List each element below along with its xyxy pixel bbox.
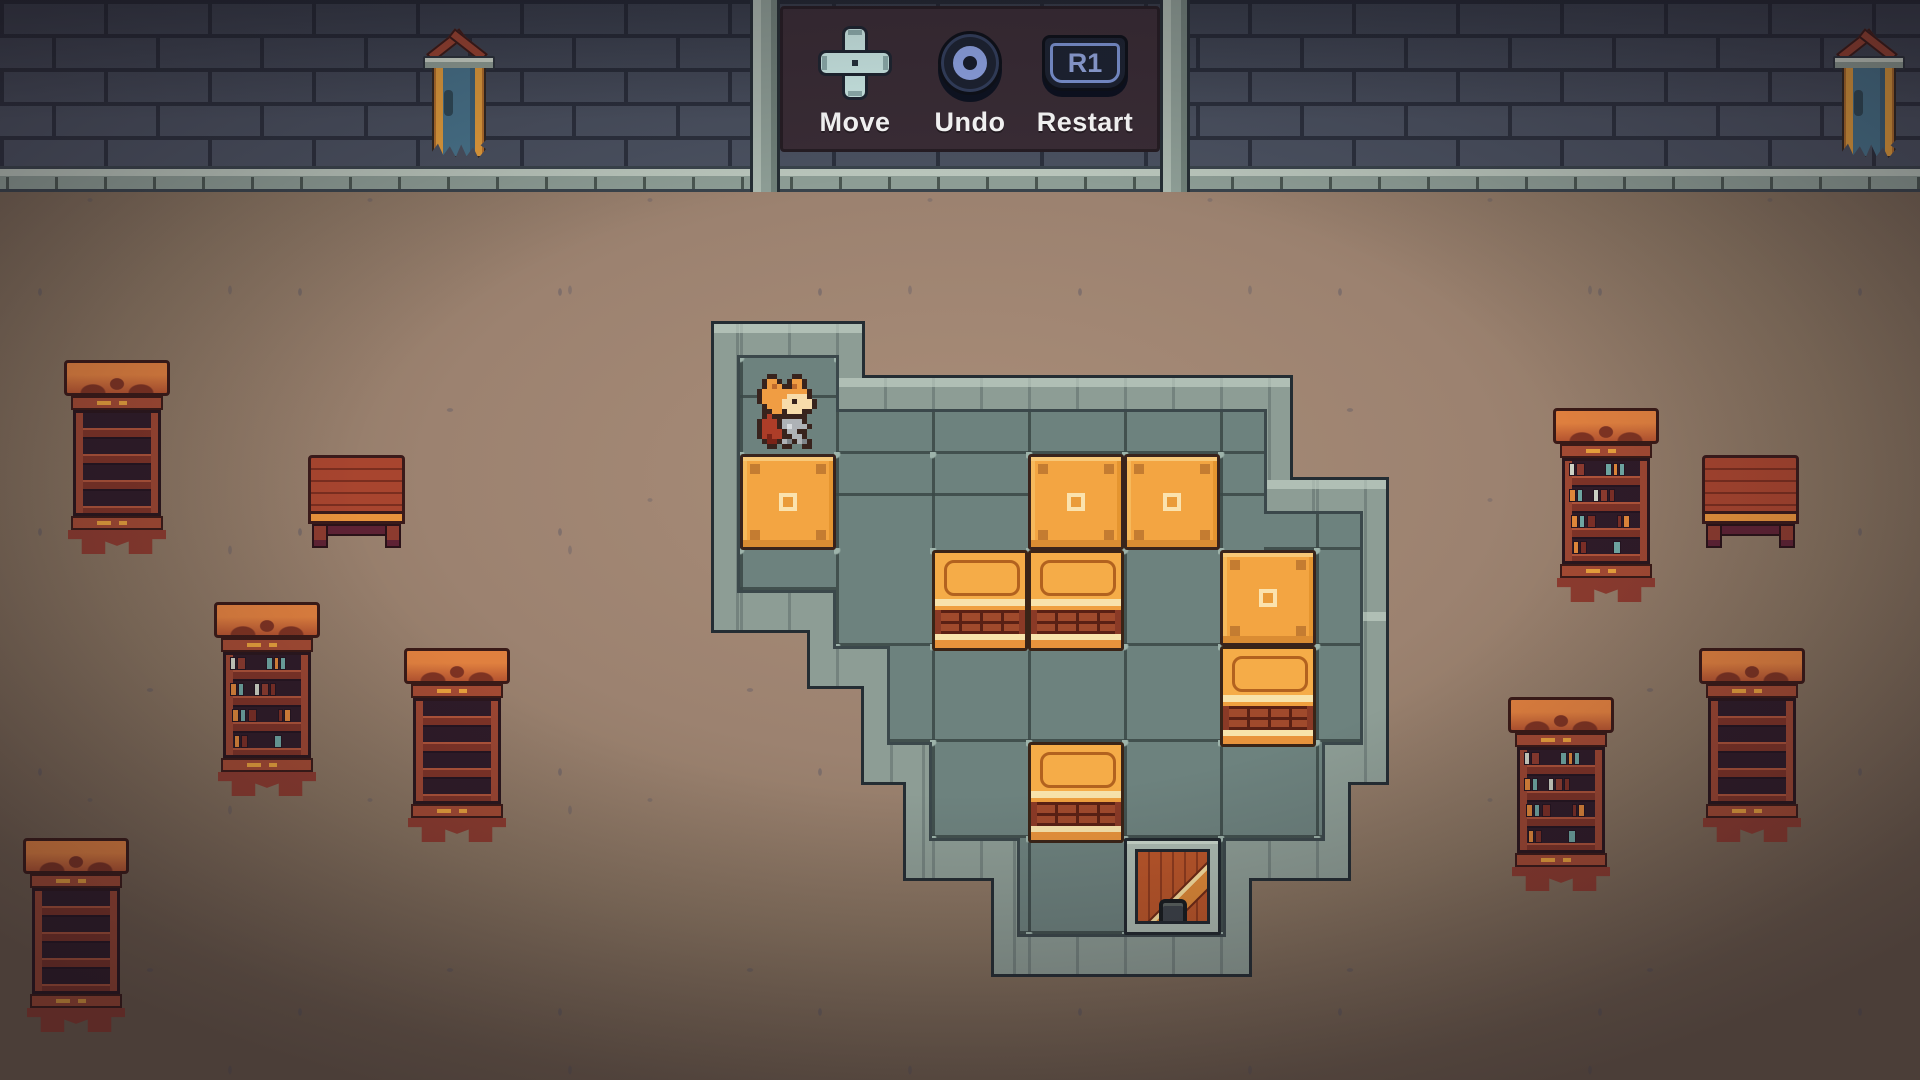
book-spine [232, 709, 239, 722]
table [308, 455, 405, 550]
cabinet-top-panel [1232, 656, 1308, 692]
book-spine [1572, 804, 1577, 817]
bookshelf-shelves [73, 410, 161, 516]
book-spine [241, 735, 248, 748]
bookshelf-shelves [1708, 698, 1796, 804]
book-spine [1619, 463, 1625, 476]
wall-baseboard [0, 166, 1920, 192]
bookshelf-crown [1553, 408, 1659, 444]
book-spine [1577, 489, 1583, 502]
bookshelf-books [1565, 461, 1647, 561]
book-spine [1580, 541, 1587, 554]
cabinet-top-panel [1040, 560, 1116, 596]
banner-rod [1833, 56, 1905, 70]
book-spine [1564, 778, 1570, 791]
cabinet-drawer-slats [1037, 610, 1115, 634]
book-spine [1526, 804, 1533, 817]
book-spine [1524, 778, 1531, 791]
book-spine [1569, 463, 1575, 476]
crate-center-mark [1163, 493, 1181, 511]
cabinet-block[interactable] [932, 550, 1028, 651]
banner-rod [423, 56, 495, 70]
r1-button-icon: R1 [1042, 35, 1128, 91]
cabinet-block[interactable] [1028, 550, 1124, 651]
puzzle-platform [740, 358, 1360, 934]
bookshelf-trim [411, 684, 503, 698]
cabinet-drawer-slats [1037, 802, 1115, 826]
bookshelf-trim [221, 638, 313, 652]
table-leg-left [1706, 524, 1722, 548]
bookshelf-base-trim [71, 516, 163, 530]
bookshelf-base-trim [1515, 853, 1607, 867]
book-spine [1534, 804, 1540, 817]
banner-emblem [1854, 90, 1863, 116]
bookshelf-books [226, 655, 308, 755]
bookshelf-trim [1515, 733, 1607, 747]
bookshelf-empty [408, 648, 506, 842]
bookshelf-skirt [68, 530, 166, 554]
bookshelf-skirt [27, 1008, 125, 1032]
book-spine [1542, 804, 1551, 817]
bookshelf-crown [214, 602, 320, 638]
bookshelf-crown [1508, 697, 1614, 733]
book-spine [1578, 804, 1585, 817]
trapdoor-ring-handle [1159, 899, 1187, 921]
bookshelf-base-trim [221, 758, 313, 772]
book-spine [230, 683, 237, 696]
book-spine [234, 735, 240, 748]
bookshelf-shelves [32, 888, 120, 994]
book-spine [240, 709, 246, 722]
bookshelf-with-books [1512, 697, 1610, 891]
book-spine [266, 657, 273, 670]
bookshelf-trim [1560, 444, 1652, 458]
bookshelf-with-books [1557, 408, 1655, 602]
book-spine [274, 657, 279, 670]
crate-block[interactable] [740, 454, 836, 550]
table-leg-left [312, 524, 328, 548]
undo-icon-area [938, 19, 1002, 107]
book-spine [1605, 463, 1612, 476]
bookshelf-trim [30, 874, 122, 888]
book-spine [1587, 515, 1596, 528]
banner-cloth [432, 68, 486, 158]
bookshelf-with-books [218, 602, 316, 796]
book-spine [270, 683, 276, 696]
cabinet-block[interactable] [1220, 646, 1316, 747]
banner-emblem [444, 90, 453, 116]
bookshelf-trim [71, 396, 163, 410]
bookshelf-trim [1706, 684, 1798, 698]
book-spine [1568, 752, 1573, 765]
book-spine [1600, 489, 1608, 502]
bookshelf-skirt [1557, 578, 1655, 602]
book-spine [1617, 515, 1622, 528]
table-leg-right [385, 524, 401, 548]
table-apron [1714, 524, 1787, 536]
bookshelf-books [1520, 750, 1602, 850]
fox-player[interactable] [757, 374, 822, 449]
crate-center-mark [779, 493, 797, 511]
book-spine [280, 657, 286, 670]
dpad-icon [818, 26, 892, 100]
book-spine [274, 735, 282, 748]
book-spine [248, 709, 257, 722]
book-spine [1613, 541, 1621, 554]
restart-control[interactable]: R1 Restart [1029, 19, 1141, 149]
bookshelf-crown [404, 648, 510, 684]
move-label: Move [819, 107, 890, 138]
book-spine [1579, 515, 1585, 528]
bookshelf-empty [68, 360, 166, 554]
book-spine [284, 709, 291, 722]
table [1702, 455, 1799, 550]
book-spine [1574, 752, 1580, 765]
wall-banner [423, 28, 491, 160]
book-spine [1555, 778, 1563, 791]
book-spine [1576, 463, 1585, 476]
move-control[interactable]: Move [799, 19, 911, 149]
book-spine [1623, 515, 1630, 528]
undo-label: Undo [935, 107, 1006, 138]
book-spine [230, 657, 236, 670]
book-spine [1531, 752, 1540, 765]
crate-block[interactable] [1220, 550, 1316, 646]
banner-cloth [1842, 68, 1896, 158]
book-spine [278, 709, 283, 722]
book-spine [1613, 463, 1618, 476]
table-front-edge [308, 511, 405, 524]
bookshelf-crown [1699, 648, 1805, 684]
book-spine [1571, 515, 1578, 528]
trapdoor-hatch [1138, 852, 1207, 921]
game-stage: Move Undo R1 Restart [0, 0, 1920, 1080]
book-spine [1535, 830, 1542, 843]
table-apron [320, 524, 393, 536]
bookshelf-skirt [218, 772, 316, 796]
cabinet-drawer-slats [1229, 706, 1307, 730]
crate-block[interactable] [1124, 454, 1220, 550]
bookshelf-shelves [413, 698, 501, 804]
book-spine [1548, 778, 1554, 791]
bookshelf-skirt [1512, 867, 1610, 891]
r1-key-text: R1 [1068, 48, 1103, 79]
cabinet-top-panel [1040, 752, 1116, 788]
book-spine [1609, 489, 1615, 502]
hud-panel: Move Undo R1 Restart [780, 6, 1160, 152]
cabinet-top-panel [944, 560, 1020, 596]
cabinet-drawer-slats [941, 610, 1019, 634]
bookshelf-empty [27, 838, 125, 1032]
book-spine [1569, 489, 1576, 502]
book-spine [1593, 489, 1599, 502]
wall-banner [1833, 28, 1901, 160]
table-top [308, 455, 405, 515]
book-spine [1528, 830, 1534, 843]
book-spine [238, 683, 244, 696]
bookshelf-base-trim [30, 994, 122, 1008]
bookshelf-base-trim [411, 804, 503, 818]
crate-block[interactable] [1028, 454, 1124, 550]
bookshelf-crown [23, 838, 129, 874]
table-leg-right [1779, 524, 1795, 548]
bookshelf-base-trim [1706, 804, 1798, 818]
book-spine [1524, 752, 1530, 765]
book-spine [237, 657, 246, 670]
book-spine [261, 683, 269, 696]
bookshelf-base-trim [1560, 564, 1652, 578]
bookshelf-empty [1703, 648, 1801, 842]
cabinet-block[interactable] [1028, 742, 1124, 843]
circle-button-icon [938, 31, 1002, 95]
trapdoor-frame-inner [1135, 849, 1210, 924]
bookshelf-crown [64, 360, 170, 396]
bookshelf-skirt [1703, 818, 1801, 842]
book-spine [254, 683, 260, 696]
trapdoor-goal [1124, 838, 1221, 935]
crate-center-mark [1067, 493, 1085, 511]
undo-control[interactable]: Undo [914, 19, 1026, 149]
book-spine [1568, 830, 1576, 843]
bookshelf-skirt [408, 818, 506, 842]
book-spine [1573, 541, 1579, 554]
restart-icon-area: R1 [1042, 19, 1128, 107]
table-top [1702, 455, 1799, 515]
book-spine [1560, 752, 1567, 765]
fox-pixels [757, 374, 762, 379]
crate-center-mark [1259, 589, 1277, 607]
book-spine [1532, 778, 1538, 791]
table-front-edge [1702, 511, 1799, 524]
move-icon-area [818, 19, 892, 107]
restart-label: Restart [1037, 107, 1134, 138]
